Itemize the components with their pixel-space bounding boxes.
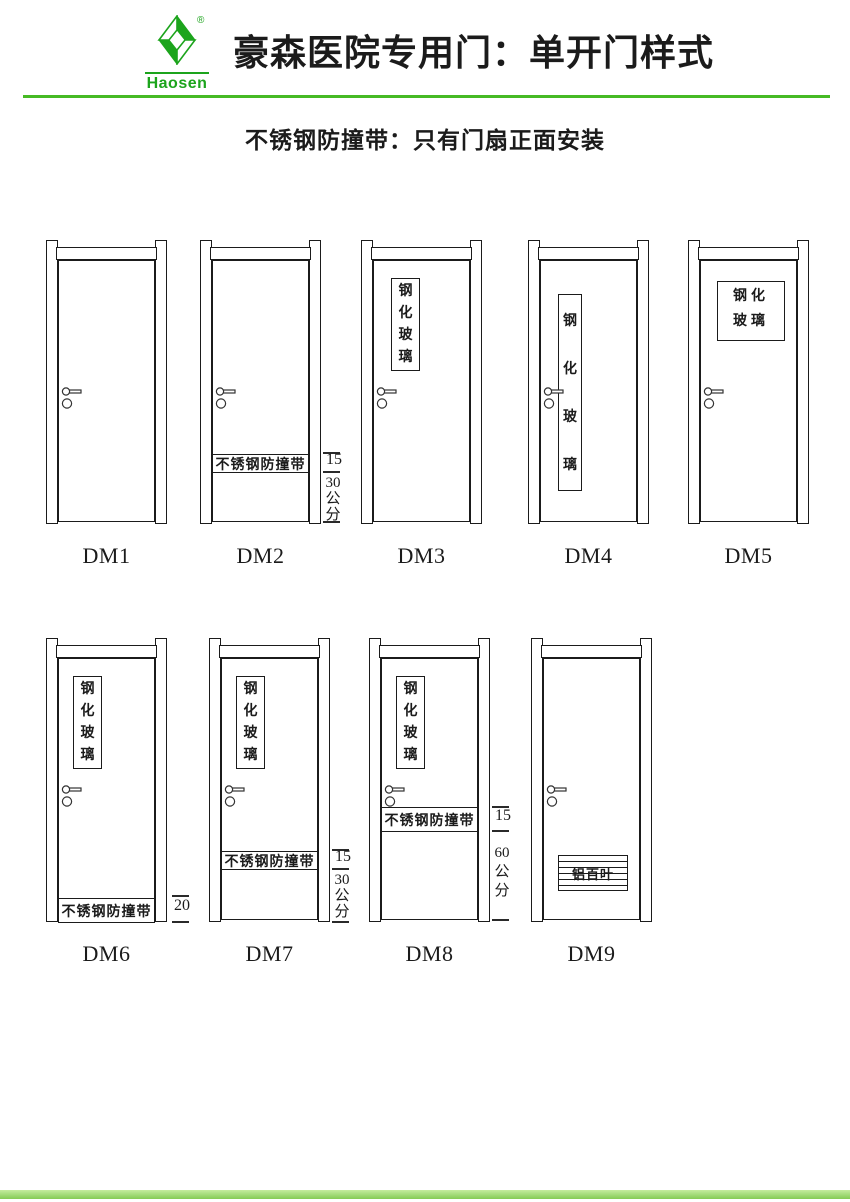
logo-underline bbox=[145, 72, 209, 74]
frame-left-post bbox=[209, 638, 221, 922]
frame-right-post bbox=[155, 240, 167, 524]
door-leaf: 钢化玻璃 bbox=[373, 260, 470, 522]
dimension-tick bbox=[323, 521, 340, 523]
band-label: 不锈钢防撞带 bbox=[62, 901, 152, 921]
glass-window: 钢化玻璃 bbox=[73, 676, 102, 769]
page-title: 豪森医院专用门：单开门样式 bbox=[233, 24, 714, 76]
door-handle-icon bbox=[223, 778, 249, 810]
registered-trademark-icon: ® bbox=[197, 15, 204, 26]
frame-left-post bbox=[528, 240, 540, 524]
door-label: DM7 bbox=[209, 941, 330, 967]
frame-top-rail bbox=[210, 247, 311, 260]
door-label: DM1 bbox=[46, 543, 167, 569]
door-handle-icon bbox=[542, 380, 568, 412]
glass-window: 钢化玻璃 bbox=[396, 676, 425, 769]
frame-left-post bbox=[531, 638, 543, 922]
anti-collision-band: 不锈钢防撞带 bbox=[381, 807, 478, 832]
frame-right-post bbox=[470, 240, 482, 524]
frame-right-post bbox=[155, 638, 167, 922]
frame-top-rail bbox=[698, 247, 799, 260]
door-leaf: 钢化玻璃 不锈钢防撞带 bbox=[221, 658, 318, 920]
frame-top-rail bbox=[538, 247, 639, 260]
brand-name: Haosen bbox=[134, 75, 220, 93]
door-label: DM3 bbox=[361, 543, 482, 569]
glass-label: 钢化玻璃 bbox=[243, 679, 259, 767]
glass-window: 钢化玻璃 bbox=[391, 278, 420, 371]
door-handle-icon bbox=[383, 778, 409, 810]
door-leaf: 不锈钢防撞带 bbox=[212, 260, 309, 522]
door-dm2: 不锈钢防撞带 15 30公分 DM2 bbox=[200, 240, 321, 524]
door-dm6: 钢化玻璃 不锈钢防撞带 20 DM6 bbox=[46, 638, 167, 922]
glass-label: 钢化玻璃 bbox=[403, 679, 419, 767]
band-label: 不锈钢防撞带 bbox=[385, 810, 475, 830]
door-handle-icon bbox=[214, 380, 240, 412]
door-leaf: 钢化玻璃 bbox=[700, 260, 797, 522]
door-dm7: 钢化玻璃 不锈钢防撞带 15 30公分 DM7 bbox=[209, 638, 330, 922]
louver-label: 铝百叶 bbox=[572, 864, 614, 883]
glass-label: 钢化玻璃 bbox=[80, 679, 96, 767]
frame-top-rail bbox=[219, 645, 320, 658]
dimension-label: 15 bbox=[491, 807, 515, 825]
door-dm8: 钢化玻璃 不锈钢防撞带 15 60公分 DM8 bbox=[369, 638, 490, 922]
door-style-sheet: ® Haosen 豪森医院专用门：单开门样式 不锈钢防撞带：只有门扇正面安装 D… bbox=[0, 0, 850, 1202]
door-leaf: 钢化玻璃 bbox=[540, 260, 637, 522]
band-label: 不锈钢防撞带 bbox=[225, 851, 315, 871]
haosen-logo: ® Haosen bbox=[140, 12, 235, 98]
frame-top-rail bbox=[56, 247, 157, 260]
dimension-label: 15 bbox=[331, 848, 355, 866]
header-divider bbox=[23, 95, 830, 98]
frame-right-post bbox=[309, 240, 321, 524]
frame-right-post bbox=[797, 240, 809, 524]
door-label: DM9 bbox=[531, 941, 652, 967]
door-dm5: 钢化玻璃 DM5 bbox=[688, 240, 809, 524]
door-handle-icon bbox=[60, 380, 86, 412]
haosen-diamond-icon bbox=[157, 15, 197, 65]
door-dm1: DM1 bbox=[46, 240, 167, 524]
frame-left-post bbox=[46, 638, 58, 922]
frame-top-rail bbox=[371, 247, 472, 260]
door-label: DM4 bbox=[528, 543, 649, 569]
dimension-tick bbox=[323, 471, 340, 473]
frame-right-post bbox=[640, 638, 652, 922]
door-dm3: 钢化玻璃 DM3 bbox=[361, 240, 482, 524]
glass-window: 钢化玻璃 bbox=[236, 676, 265, 769]
frame-top-rail bbox=[56, 645, 157, 658]
door-label: DM6 bbox=[46, 941, 167, 967]
dimension-tick bbox=[172, 921, 189, 923]
dimension-tick bbox=[332, 868, 349, 870]
frame-top-rail bbox=[379, 645, 480, 658]
band-label: 不锈钢防撞带 bbox=[216, 454, 306, 474]
frame-right-post bbox=[318, 638, 330, 922]
dimension-tick bbox=[492, 919, 509, 921]
frame-right-post bbox=[478, 638, 490, 922]
door-leaf: 铝百叶 bbox=[543, 658, 640, 920]
dimension-label: 30公分 bbox=[333, 872, 351, 920]
door-dm9: 铝百叶 DM9 bbox=[531, 638, 652, 922]
dimension-tick bbox=[332, 921, 349, 923]
door-leaf: 钢化玻璃 不锈钢防撞带 bbox=[381, 658, 478, 920]
door-handle-icon bbox=[545, 778, 571, 810]
page-subtitle: 不锈钢防撞带：只有门扇正面安装 bbox=[0, 121, 850, 155]
dimension-tick bbox=[492, 830, 509, 832]
door-handle-icon bbox=[702, 380, 728, 412]
dimension-label: 60公分 bbox=[493, 844, 511, 901]
anti-collision-band: 不锈钢防撞带 bbox=[221, 851, 318, 870]
anti-collision-band: 不锈钢防撞带 bbox=[58, 898, 155, 923]
anti-collision-band: 不锈钢防撞带 bbox=[212, 454, 309, 473]
door-handle-icon bbox=[375, 380, 401, 412]
dimension-label: 20 bbox=[170, 897, 194, 915]
glass-label: 钢化玻璃 bbox=[729, 284, 773, 334]
door-label: DM5 bbox=[688, 543, 809, 569]
dimension-label: 30公分 bbox=[324, 475, 342, 523]
frame-left-post bbox=[46, 240, 58, 524]
frame-left-post bbox=[369, 638, 381, 922]
door-leaf: 钢化玻璃 不锈钢防撞带 bbox=[58, 658, 155, 920]
frame-left-post bbox=[200, 240, 212, 524]
door-label: DM2 bbox=[200, 543, 321, 569]
aluminum-louver: 铝百叶 bbox=[558, 855, 628, 891]
glass-window: 钢化玻璃 bbox=[717, 281, 785, 341]
dimension-label: 15 bbox=[322, 451, 346, 469]
door-handle-icon bbox=[60, 778, 86, 810]
frame-right-post bbox=[637, 240, 649, 524]
footer-accent-strip bbox=[0, 1190, 850, 1199]
frame-left-post bbox=[361, 240, 373, 524]
frame-top-rail bbox=[541, 645, 642, 658]
frame-left-post bbox=[688, 240, 700, 524]
door-dm4: 钢化玻璃 DM4 bbox=[528, 240, 649, 524]
door-leaf bbox=[58, 260, 155, 522]
glass-label: 钢化玻璃 bbox=[398, 281, 414, 369]
door-label: DM8 bbox=[369, 941, 490, 967]
